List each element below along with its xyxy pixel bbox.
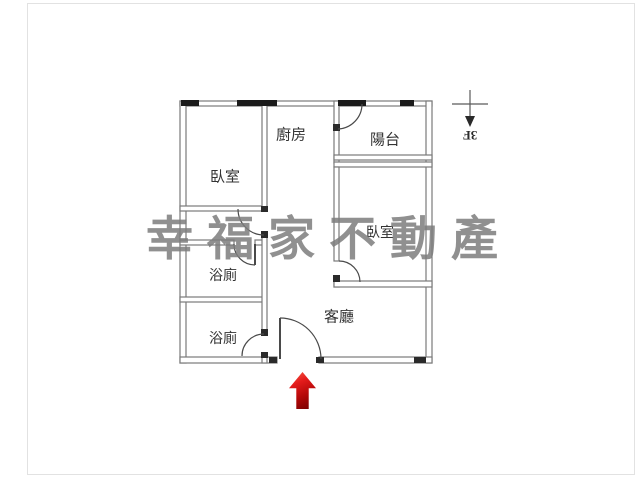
watermark-text: 幸福家不動產 bbox=[146, 215, 512, 262]
wall-kitchen-balcony bbox=[334, 101, 339, 163]
door-leaf-entrance bbox=[279, 318, 281, 359]
room-label-bathroom-2: 浴廁 bbox=[209, 328, 237, 348]
room-label-balcony: 陽台 bbox=[370, 129, 400, 150]
door-balcony bbox=[338, 104, 362, 129]
window-top-1 bbox=[181, 100, 199, 106]
wall-bathroom-divider bbox=[180, 297, 264, 302]
room-label-bathroom-1: 浴廁 bbox=[209, 265, 237, 285]
wall-bedroom2-bottom bbox=[334, 281, 432, 287]
wall-balcony-bottom bbox=[334, 155, 432, 160]
door-entrance bbox=[280, 318, 321, 359]
door-bathroom2 bbox=[242, 334, 264, 356]
room-label-kitchen: 廚房 bbox=[276, 124, 306, 145]
compass-floor-label: 3F bbox=[458, 127, 482, 143]
window-top-2 bbox=[237, 100, 277, 106]
wall-center-vertical-a bbox=[262, 101, 267, 209]
room-label-bedroom-1: 臥室 bbox=[210, 166, 240, 187]
window-top-4 bbox=[400, 100, 414, 106]
north-indicator-icon bbox=[452, 90, 488, 127]
wall-top bbox=[180, 101, 432, 106]
wall-bedroom2-top bbox=[334, 162, 432, 167]
floor-plan-page: 臥室 廚房 陽台 臥室 浴廁 浴廁 客廳 3F 幸福家不動產 bbox=[0, 0, 640, 480]
wall-bedroom1-bottom bbox=[180, 206, 264, 211]
room-label-living-room: 客廳 bbox=[324, 306, 354, 327]
